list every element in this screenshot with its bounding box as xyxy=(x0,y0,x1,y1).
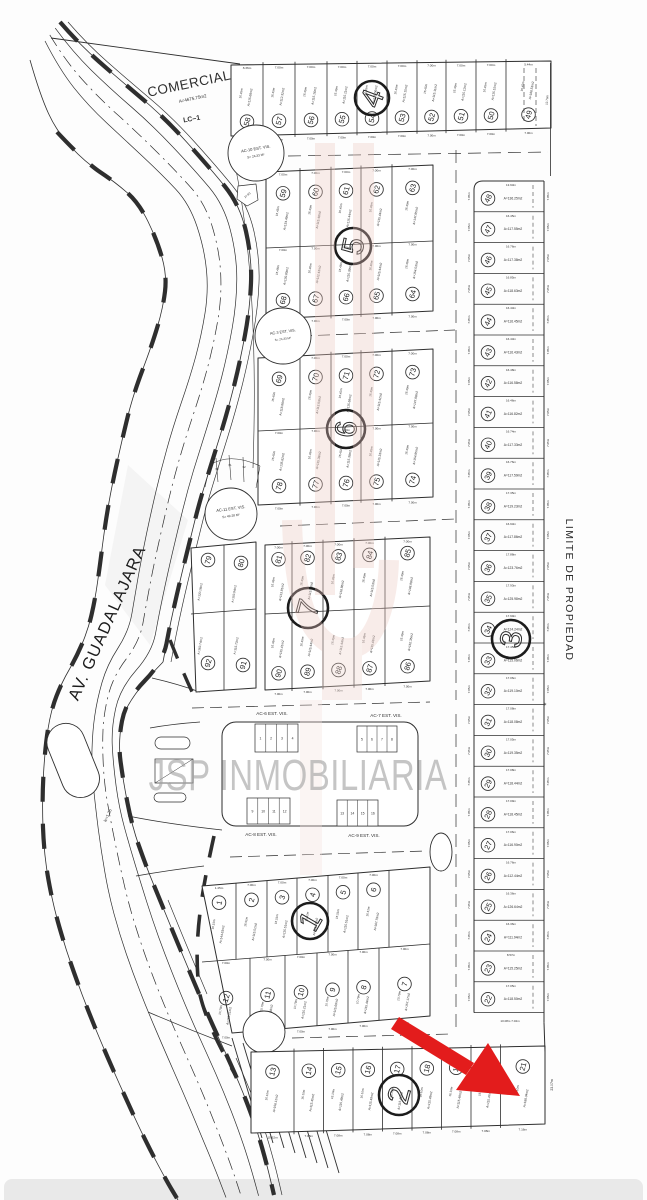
svg-text:7.05m: 7.05m xyxy=(467,592,471,601)
svg-text:7.00m: 7.00m xyxy=(328,953,337,957)
svg-text:7.00m: 7.00m xyxy=(275,507,284,511)
svg-text:JSP INMOBILIARIA: JSP INMOBILIARIA xyxy=(149,752,448,800)
svg-text:7.05m: 7.05m xyxy=(467,315,471,324)
svg-text:7.05m: 7.05m xyxy=(467,993,471,1002)
svg-text:7.05m: 7.05m xyxy=(546,993,550,1002)
svg-text:7.00m: 7.00m xyxy=(359,1024,368,1028)
svg-text:16.74m: 16.74m xyxy=(506,429,517,433)
svg-text:7.00m: 7.00m xyxy=(403,539,412,543)
svg-text:A=117.55m2: A=117.55m2 xyxy=(504,227,523,231)
svg-text:17.08m: 17.08m xyxy=(506,768,517,772)
svg-text:7.05m: 7.05m xyxy=(546,253,550,262)
svg-text:A=117.38m2: A=117.38m2 xyxy=(504,258,523,262)
svg-text:7.00m: 7.00m xyxy=(403,685,412,689)
svg-text:23.07m: 23.07m xyxy=(550,1079,554,1090)
svg-text:13: 13 xyxy=(340,812,344,816)
svg-text:7.00m: 7.00m xyxy=(297,955,306,959)
svg-text:A=119.35m2: A=119.35m2 xyxy=(504,751,523,755)
svg-text:7.05m: 7.05m xyxy=(546,685,550,694)
svg-text:16.48m: 16.48m xyxy=(506,368,517,372)
svg-text:7.00m: 7.00m xyxy=(297,1030,306,1034)
svg-text:16.85m: 16.85m xyxy=(506,275,517,279)
svg-text:A=126.64m2: A=126.64m2 xyxy=(504,905,523,909)
svg-text:7.00m: 7.00m xyxy=(427,64,436,68)
svg-text:7.00m: 7.00m xyxy=(247,883,256,887)
svg-text:7.00m: 7.00m xyxy=(457,63,466,67)
svg-text:7.00m: 7.00m xyxy=(369,873,378,877)
svg-text:3: 3 xyxy=(281,737,283,741)
svg-text:AC-7 EST. VIS.: AC-7 EST. VIS. xyxy=(370,713,401,718)
svg-text:16.45m: 16.45m xyxy=(506,214,517,218)
svg-text:A=118.08m2: A=118.08m2 xyxy=(504,720,523,724)
svg-text:16.36m: 16.36m xyxy=(506,922,517,926)
svg-text:7.05m: 7.05m xyxy=(467,869,471,878)
svg-text:7.00m: 7.00m xyxy=(408,425,417,429)
svg-text:A=115.25m2: A=115.25m2 xyxy=(504,966,523,970)
svg-text:A=125.98m2: A=125.98m2 xyxy=(504,597,523,601)
svg-text:7.00m: 7.00m xyxy=(365,687,374,691)
svg-text:9: 9 xyxy=(251,810,253,814)
svg-text:7.05m: 7.05m xyxy=(546,500,550,509)
svg-text:7.05m: 7.05m xyxy=(467,346,471,355)
svg-text:7.05m: 7.05m xyxy=(546,407,550,416)
svg-text:7.05m: 7.05m xyxy=(467,931,471,940)
svg-text:7.08m: 7.08m xyxy=(393,1132,402,1136)
svg-text:13.93m: 13.93m xyxy=(506,183,517,187)
svg-text:7.08m: 7.08m xyxy=(363,1132,372,1136)
svg-text:16.76m: 16.76m xyxy=(506,861,517,865)
svg-text:17.35m: 17.35m xyxy=(506,491,517,495)
svg-text:AC-6 EST. VIS.: AC-6 EST. VIS. xyxy=(256,711,287,716)
svg-text:7.00m: 7.00m xyxy=(279,248,288,252)
svg-text:7.00m: 7.00m xyxy=(275,431,284,435)
svg-text:7.05m: 7.05m xyxy=(546,931,550,940)
svg-text:7.00m: 7.00m xyxy=(303,690,312,694)
svg-text:7.00m: 7.00m xyxy=(359,950,368,954)
svg-text:7.05m: 7.05m xyxy=(546,654,550,663)
svg-text:10.08m 7.04m: 10.08m 7.04m xyxy=(500,1019,520,1023)
svg-text:7.00m: 7.00m xyxy=(342,170,351,174)
svg-text:7.00m: 7.00m xyxy=(308,878,317,882)
svg-text:7.00m: 7.00m xyxy=(408,315,417,319)
svg-text:7.00m: 7.00m xyxy=(524,131,533,135)
svg-text:7.00m: 7.00m xyxy=(303,544,312,548)
svg-text:1.45m: 1.45m xyxy=(215,886,224,890)
svg-text:7.00m: 7.00m xyxy=(408,243,417,247)
svg-text:7.08m: 7.08m xyxy=(481,1129,490,1133)
svg-text:A=117.86m2: A=117.86m2 xyxy=(504,535,523,539)
svg-text:14: 14 xyxy=(351,812,355,816)
svg-text:A=119.10m2: A=119.10m2 xyxy=(504,689,523,693)
svg-text:17.08m: 17.08m xyxy=(506,707,517,711)
svg-text:7.05m: 7.05m xyxy=(546,746,550,755)
svg-text:7.00m: 7.00m xyxy=(339,876,348,880)
svg-text:7.05m: 7.05m xyxy=(546,284,550,293)
svg-text:7.00m: 7.00m xyxy=(342,355,351,359)
svg-text:AC-9 EST. VIS.: AC-9 EST. VIS. xyxy=(348,833,379,838)
svg-text:7.05m: 7.05m xyxy=(467,839,471,848)
svg-text:4: 4 xyxy=(292,737,294,741)
svg-text:7.08m: 7.08m xyxy=(304,1134,313,1138)
svg-text:16.36m: 16.36m xyxy=(506,891,517,895)
svg-text:7.05m: 7.05m xyxy=(467,746,471,755)
svg-text:7.05m: 7.05m xyxy=(467,531,471,540)
svg-text:1: 1 xyxy=(259,737,261,741)
svg-text:7.05m: 7.05m xyxy=(467,654,471,663)
svg-text:7.05m: 7.05m xyxy=(546,346,550,355)
svg-text:7.05m: 7.05m xyxy=(546,377,550,386)
svg-text:7.05m: 7.05m xyxy=(546,315,550,324)
svg-text:17.93m: 17.93m xyxy=(506,583,517,587)
svg-text:7.00m: 7.00m xyxy=(222,1036,231,1040)
svg-text:7.05m: 7.05m xyxy=(467,253,471,262)
svg-text:7.00m: 7.00m xyxy=(400,947,409,951)
svg-text:17.05m: 17.05m xyxy=(506,984,517,988)
svg-text:7.16m: 7.16m xyxy=(518,1128,527,1132)
svg-text:8.57m: 8.57m xyxy=(507,953,516,957)
svg-text:2: 2 xyxy=(270,737,272,741)
svg-text:7.05m: 7.05m xyxy=(546,839,550,848)
svg-text:7.05m: 7.05m xyxy=(546,192,550,201)
svg-text:7.05m: 7.05m xyxy=(467,284,471,293)
svg-text:7.05m: 7.05m xyxy=(467,377,471,386)
svg-text:7.08m: 7.08m xyxy=(334,1133,343,1137)
svg-text:7.00m: 7.00m xyxy=(368,64,377,68)
svg-text:7.00m: 7.00m xyxy=(457,133,466,137)
svg-text:15: 15 xyxy=(361,812,365,816)
svg-text:7.05m: 7.05m xyxy=(467,500,471,509)
svg-text:7.00m: 7.00m xyxy=(338,136,347,140)
svg-text:16.76m: 16.76m xyxy=(506,460,517,464)
svg-text:16.76m: 16.76m xyxy=(506,245,517,249)
svg-text:7.00m: 7.00m xyxy=(274,546,283,550)
svg-text:A=112.44m2: A=112.44m2 xyxy=(504,874,523,878)
svg-text:7.00m: 7.00m xyxy=(342,504,351,508)
svg-text:7.05m: 7.05m xyxy=(467,715,471,724)
svg-text:16.43m: 16.43m xyxy=(506,306,517,310)
svg-text:A=116.58m2: A=116.58m2 xyxy=(504,381,523,385)
svg-text:17.05m: 17.05m xyxy=(506,737,517,741)
svg-text:7.05m: 7.05m xyxy=(546,223,550,232)
svg-text:A=118.63m2: A=118.63m2 xyxy=(504,289,523,293)
svg-text:16.93m: 16.93m xyxy=(506,522,517,526)
svg-text:7.00m: 7.00m xyxy=(408,167,417,171)
svg-text:A=118.50m2: A=118.50m2 xyxy=(504,997,523,1001)
svg-text:7.05m: 7.05m xyxy=(467,223,471,232)
svg-text:7.08m: 7.08m xyxy=(452,1130,461,1134)
svg-text:7.00m: 7.00m xyxy=(487,63,496,67)
svg-text:A=123.76m2: A=123.76m2 xyxy=(504,566,523,570)
svg-text:7: 7 xyxy=(381,738,383,742)
svg-text:7.00m: 7.00m xyxy=(338,65,347,69)
svg-text:7.05m: 7.05m xyxy=(546,962,550,971)
svg-text:7.05m: 7.05m xyxy=(546,869,550,878)
svg-text:7.05m: 7.05m xyxy=(546,438,550,447)
svg-text:5: 5 xyxy=(361,738,363,742)
svg-text:8: 8 xyxy=(391,738,393,742)
svg-text:7.05m: 7.05m xyxy=(467,192,471,201)
svg-text:7.00m: 7.00m xyxy=(398,134,407,138)
svg-text:A=116.82m2: A=116.82m2 xyxy=(504,412,523,416)
svg-text:7.00m: 7.00m xyxy=(408,500,417,504)
svg-text:16.46m: 16.46m xyxy=(506,399,517,403)
svg-text:A=116.43m2: A=116.43m2 xyxy=(504,350,523,354)
svg-text:11: 11 xyxy=(272,810,276,814)
svg-text:5.44m: 5.44m xyxy=(524,63,533,67)
svg-text:7.00m: 7.00m xyxy=(334,543,343,547)
svg-text:7.00m: 7.00m xyxy=(307,65,316,69)
svg-text:7.00m: 7.00m xyxy=(427,134,436,138)
svg-text:A=119.23m2: A=119.23m2 xyxy=(504,504,523,508)
svg-text:16: 16 xyxy=(371,812,375,816)
svg-text:LIMITE DE PROPIEDAD: LIMITE DE PROPIEDAD xyxy=(563,519,575,662)
svg-text:7.05m: 7.05m xyxy=(467,438,471,447)
svg-text:AC-8 EST. VIS.: AC-8 EST. VIS. xyxy=(245,832,276,837)
svg-text:8.36m: 8.36m xyxy=(243,66,252,70)
svg-text:7.05m: 7.05m xyxy=(546,531,550,540)
svg-text:7.05m: 7.05m xyxy=(546,623,550,632)
svg-text:7.00m: 7.00m xyxy=(328,1027,337,1031)
svg-text:7.05m: 7.05m xyxy=(546,469,550,478)
svg-text:7.05m: 7.05m xyxy=(546,777,550,786)
svg-text:7.05m: 7.05m xyxy=(546,715,550,724)
svg-text:A=118.44m2: A=118.44m2 xyxy=(504,782,523,786)
svg-text:7.05m: 7.05m xyxy=(546,808,550,817)
svg-text:7.05m: 7.05m xyxy=(546,592,550,601)
svg-text:A=117.33m2: A=117.33m2 xyxy=(504,443,523,447)
svg-text:16.43m: 16.43m xyxy=(506,337,517,341)
svg-text:7.05m: 7.05m xyxy=(467,685,471,694)
svg-text:7.00m: 7.00m xyxy=(279,173,288,177)
svg-text:✶: ✶ xyxy=(543,702,547,708)
svg-text:A=116.45m2: A=116.45m2 xyxy=(504,320,523,324)
svg-text:7.05m: 7.05m xyxy=(546,561,550,570)
svg-text:7.05m: 7.05m xyxy=(467,623,471,632)
svg-text:7.00m: 7.00m xyxy=(275,66,284,70)
svg-text:7.05m: 7.05m xyxy=(467,777,471,786)
svg-text:7.05m: 7.05m xyxy=(467,407,471,416)
svg-text:7.05m: 7.05m xyxy=(546,900,550,909)
svg-text:17.09m: 17.09m xyxy=(506,799,517,803)
svg-text:17.06m: 17.06m xyxy=(506,676,517,680)
svg-text:7.05m: 7.05m xyxy=(467,469,471,478)
svg-text:17.06m: 17.06m xyxy=(506,830,517,834)
svg-text:7.08m: 7.08m xyxy=(422,1131,431,1135)
svg-text:7.00m: 7.00m xyxy=(398,64,407,68)
svg-text:7.05m: 7.05m xyxy=(467,808,471,817)
svg-text:7.00m: 7.00m xyxy=(263,958,272,962)
svg-text:7.00m: 7.00m xyxy=(274,692,283,696)
svg-text:7.05m: 7.05m xyxy=(467,561,471,570)
svg-text:A=111.94m2: A=111.94m2 xyxy=(504,936,522,940)
svg-text:A=116.90m2: A=116.90m2 xyxy=(504,843,523,847)
svg-text:7.00m: 7.00m xyxy=(408,351,417,355)
svg-text:A=118.45m2: A=118.45m2 xyxy=(504,812,523,816)
svg-text:7.00m: 7.00m xyxy=(368,135,377,139)
svg-text:7.00m: 7.00m xyxy=(278,881,287,885)
svg-text:A=136.25m2: A=136.25m2 xyxy=(504,196,523,200)
svg-text:7.00m: 7.00m xyxy=(222,961,231,965)
svg-text:12: 12 xyxy=(283,810,287,814)
svg-text:A=117.59m2: A=117.59m2 xyxy=(504,474,523,478)
svg-text:17.90m: 17.90m xyxy=(506,614,517,618)
svg-text:7.00m: 7.00m xyxy=(342,318,351,322)
svg-text:10.62m: 10.62m xyxy=(267,1135,278,1139)
svg-text:6: 6 xyxy=(371,738,373,742)
svg-text:10: 10 xyxy=(261,810,265,814)
svg-text:7.00m: 7.00m xyxy=(487,132,496,136)
svg-text:7.00m: 7.00m xyxy=(307,137,316,141)
svg-text:32: 32 xyxy=(242,465,246,469)
svg-text:7.05m: 7.05m xyxy=(467,900,471,909)
svg-text:7.05m: 7.05m xyxy=(467,962,471,971)
svg-text:17.88m: 17.88m xyxy=(506,553,517,557)
